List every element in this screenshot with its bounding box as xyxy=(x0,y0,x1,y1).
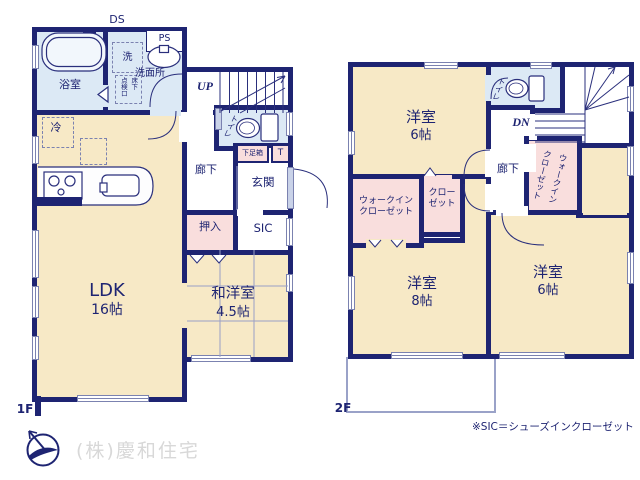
bathtub-icon xyxy=(42,33,106,71)
wayo-tatami-grid xyxy=(187,250,288,357)
sink-icon xyxy=(148,46,180,68)
label-wic1-line1: ウォークイン xyxy=(348,196,424,207)
company-watermark: (株)慶和住宅 xyxy=(76,436,200,463)
label-wic1-line2: クローゼット xyxy=(348,207,424,218)
label-sic: SIC xyxy=(238,222,288,236)
label-bed1: 洋室 xyxy=(381,108,461,126)
label-ds: DS xyxy=(103,13,131,26)
label-bed3: 洋室 xyxy=(508,263,588,281)
sic-note: ※SIC＝シューズインクローゼット xyxy=(472,419,634,434)
label-closet-2f: クロー ゼット xyxy=(421,188,463,210)
label-fridge: 冷 xyxy=(46,121,66,134)
label-bath: 浴室 xyxy=(40,78,100,91)
label-floor-1f: 1F xyxy=(12,402,38,416)
label-ldk: LDK xyxy=(62,280,152,302)
label-oshiire: 押入 xyxy=(186,220,234,233)
plan-linework xyxy=(0,0,640,480)
stairs-1f-treads xyxy=(220,72,285,113)
label-genkan: 玄関 xyxy=(238,176,288,190)
label-closet-line2: ゼット xyxy=(421,199,463,210)
stairs-2f-treads xyxy=(535,67,629,143)
label-wayo-size: 4.5帖 xyxy=(193,305,273,321)
label-dn: DN xyxy=(508,115,534,129)
compass-icon xyxy=(20,422,66,474)
label-ldk-size: 16帖 xyxy=(62,302,152,319)
label-wic1: ウォークイン クローゼット xyxy=(348,196,424,218)
label-hall-2f: 廊下 xyxy=(488,162,528,175)
toilet-2f-icon xyxy=(506,76,544,101)
label-floor-2f: 2F xyxy=(330,401,356,415)
label-bed2: 洋室 xyxy=(382,274,462,292)
label-washroom: 洗面所 xyxy=(118,68,182,80)
oshiire-door-markers xyxy=(190,255,226,263)
kitchen-half-wall xyxy=(36,197,82,206)
label-wayo: 和洋室 xyxy=(193,286,273,303)
floorplan-canvas: 洗 床下 点検口 下足箱 T xyxy=(0,0,640,480)
label-up: UP xyxy=(192,79,218,93)
label-bed2-size: 8帖 xyxy=(382,294,462,310)
label-bed3-size: 6帖 xyxy=(508,283,588,299)
label-closet-line1: クロー xyxy=(421,188,463,199)
label-hall-1f: 廊下 xyxy=(184,163,228,176)
label-bed1-size: 6帖 xyxy=(381,128,461,144)
label-ps: PS xyxy=(146,33,183,44)
toilet-1f-icon xyxy=(237,114,279,141)
